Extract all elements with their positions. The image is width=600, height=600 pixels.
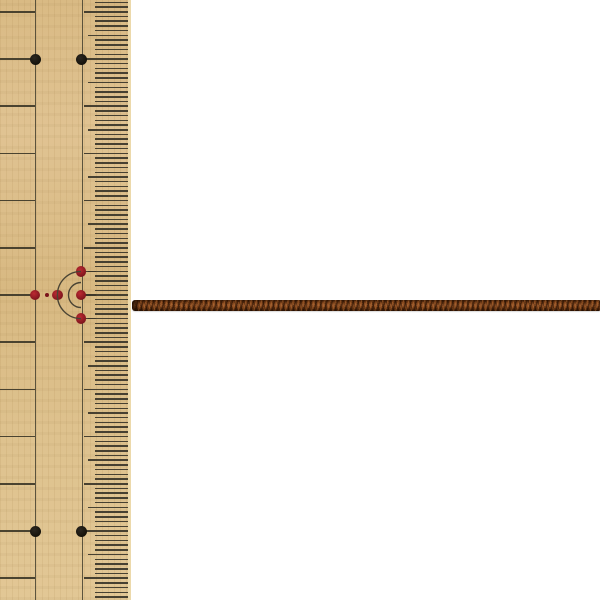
product-photo — [0, 0, 600, 600]
cord — [132, 300, 600, 311]
ruler-center-arc — [69, 283, 82, 308]
